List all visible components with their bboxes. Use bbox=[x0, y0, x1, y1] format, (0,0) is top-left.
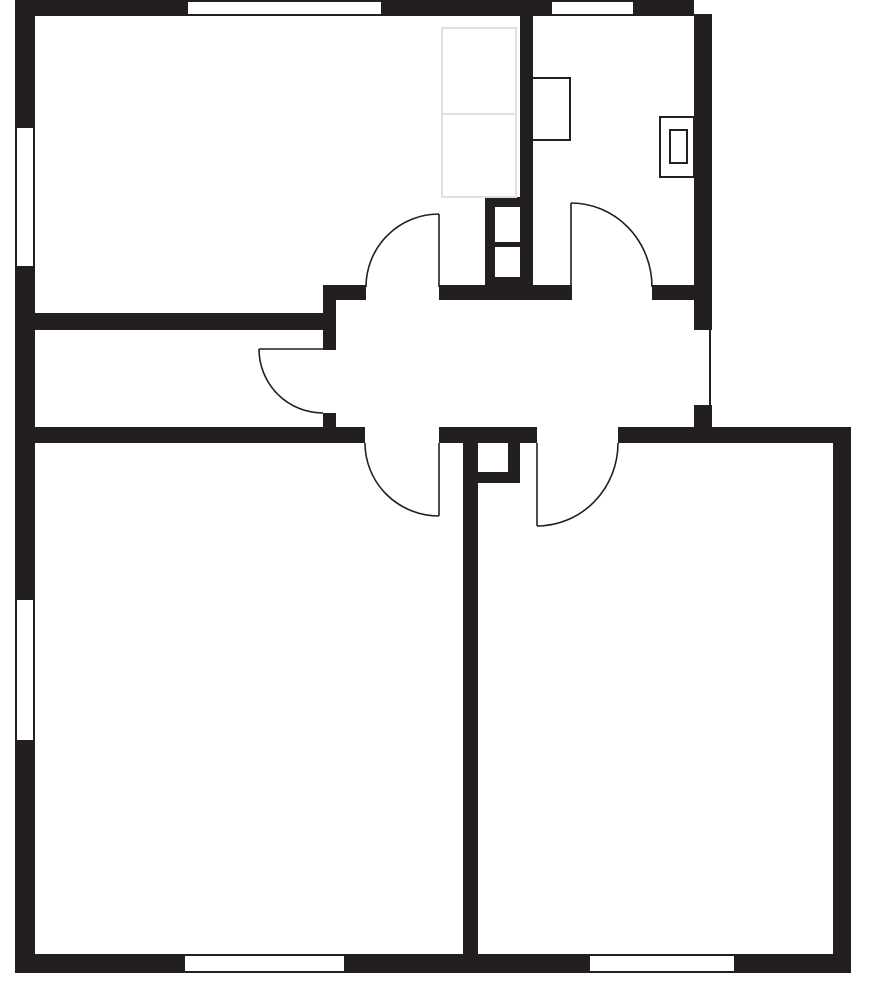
exterior-bottom-wall-right bbox=[734, 954, 851, 973]
entry-jamb-lower bbox=[694, 405, 712, 427]
floor-plan-drawing bbox=[0, 0, 888, 1004]
exterior-top-wall-right bbox=[633, 0, 694, 16]
hall-south-wall-west bbox=[15, 427, 365, 443]
kitchen-sink-basin bbox=[670, 130, 687, 163]
upper-shaft-duct-1 bbox=[495, 207, 520, 242]
exterior-bottom-wall-left bbox=[15, 954, 185, 973]
closet-east-wall-stub bbox=[323, 413, 336, 427]
kitchen-appliance-counter bbox=[532, 78, 570, 140]
plan-background bbox=[0, 0, 888, 1004]
exterior-top-wall-left bbox=[15, 0, 188, 16]
exterior-right-wall-lower bbox=[833, 443, 851, 954]
window-bottom-left-room bbox=[185, 954, 344, 973]
top-left-room-south-wall bbox=[35, 313, 336, 330]
lower-shaft-south-bar bbox=[478, 472, 520, 483]
lower-shaft-duct bbox=[478, 443, 508, 472]
floor-plan-page bbox=[0, 0, 888, 1004]
bottom-rooms-divider-wall bbox=[463, 443, 478, 954]
exterior-right-wall-upper bbox=[694, 14, 712, 330]
window-top-left-room bbox=[188, 0, 381, 16]
window-left-wall-lower bbox=[15, 600, 35, 740]
hall-south-wall-middle bbox=[439, 427, 537, 443]
hall-north-wall-west-stub bbox=[323, 285, 366, 300]
window-left-wall-upper bbox=[15, 128, 35, 266]
exterior-left-wall-lower bbox=[15, 740, 35, 973]
exterior-left-wall-upper bbox=[15, 0, 35, 128]
hall-north-wall-east bbox=[652, 285, 694, 300]
exterior-bottom-wall-middle bbox=[344, 954, 590, 973]
window-top-right-room bbox=[552, 0, 633, 16]
window-bottom-right-room bbox=[590, 954, 734, 973]
bottom-right-room-top-wall bbox=[618, 427, 851, 443]
upper-shaft-duct-2 bbox=[495, 247, 520, 277]
